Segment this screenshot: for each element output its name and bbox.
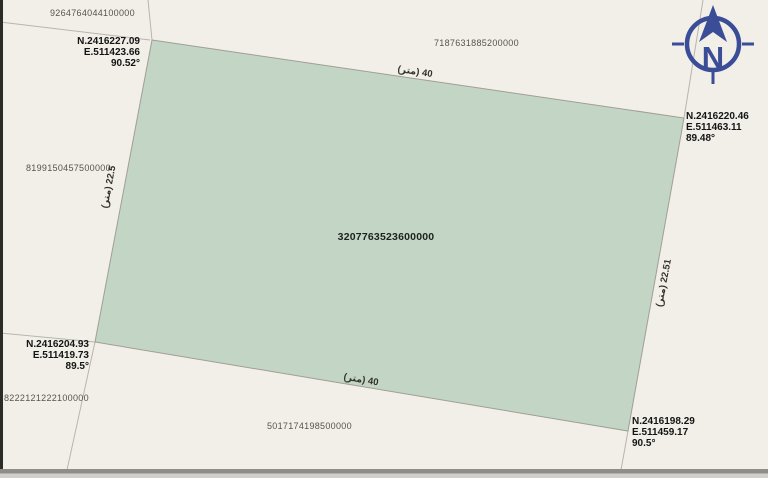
neighbor-parcel-number-bottom: 5017174198500000 [267, 421, 352, 431]
corner-label-top-left: N.2416227.09 E.511423.66 90.52° [77, 36, 140, 69]
parcel-id-label: 3207763523600000 [338, 231, 435, 243]
corner-label-top-right: N.2416220.46 E.511463.11 89.48° [686, 111, 749, 144]
corner-label-bottom-left: N.2416204.93 E.511419.73 89.5° [26, 339, 89, 372]
map-frame-bottom-shadow [0, 474, 768, 478]
corner-northing: N.2416227.09 [77, 36, 140, 47]
corner-easting: E.511419.73 [26, 350, 89, 361]
cadastral-map: N 9264764044100000 7187631885200000 8199… [0, 0, 768, 478]
boundary-line [621, 431, 628, 470]
corner-easting: E.511463.11 [686, 122, 749, 133]
corner-angle: 90.5° [632, 438, 695, 449]
map-frame-bottom [0, 469, 768, 474]
map-frame-left [0, 0, 3, 470]
neighbor-parcel-number-left: 8199150457500000 [26, 163, 111, 173]
corner-northing: N.2416220.46 [686, 111, 749, 122]
corner-angle: 89.5° [26, 361, 89, 372]
corner-label-bottom-right: N.2416198.29 E.511459.17 90.5° [632, 416, 695, 449]
compass-north-label: N [702, 40, 724, 75]
neighbor-parcel-number-bottom-left: 8222121222100000 [4, 393, 89, 403]
corner-northing: N.2416198.29 [632, 416, 695, 427]
corner-northing: N.2416204.93 [26, 339, 89, 350]
boundary-line [148, 0, 152, 40]
corner-easting: E.511459.17 [632, 427, 695, 438]
neighbor-parcel-number-top: 7187631885200000 [434, 38, 519, 48]
corner-easting: E.511423.66 [77, 47, 140, 58]
compass-rose: N [672, 5, 754, 84]
north-arrow-icon [699, 5, 727, 42]
corner-angle: 89.48° [686, 133, 749, 144]
neighbor-parcel-number-top-left: 9264764044100000 [50, 8, 135, 18]
corner-angle: 90.52° [77, 58, 140, 69]
